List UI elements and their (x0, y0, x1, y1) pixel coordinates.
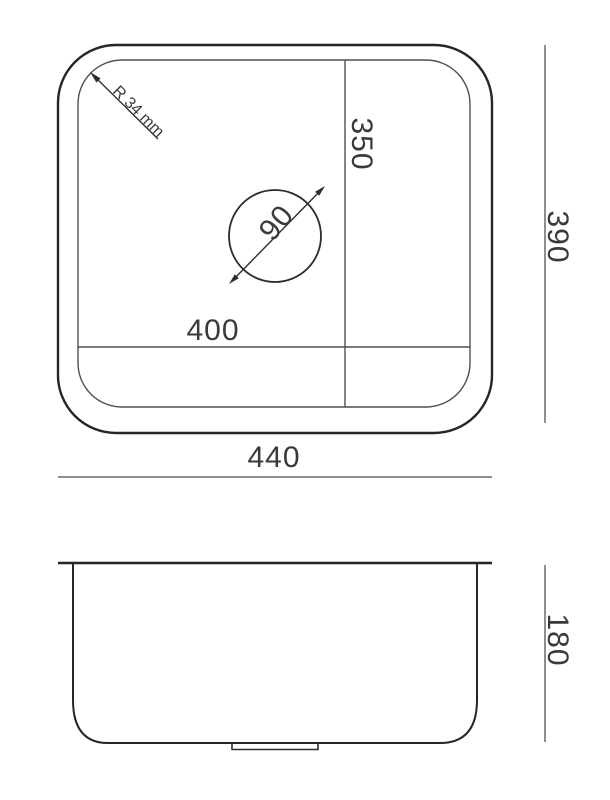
corner-radius-label: R 34 mm (109, 83, 167, 141)
side-view: 180 (58, 563, 574, 750)
side-view-body-outline (73, 563, 477, 743)
depth-label: 180 (541, 613, 574, 666)
overall-width-label: 390 (541, 210, 574, 263)
overall-length-label: 440 (247, 441, 300, 474)
technical-drawing-page: R 34 mm 350 90 400 440 390 180 (0, 0, 610, 800)
drain-diameter-label: 90 (253, 199, 301, 247)
bowl-width-label: 350 (345, 117, 378, 170)
sink-dimension-drawing: R 34 mm 350 90 400 440 390 180 (0, 0, 610, 800)
top-view: R 34 mm 350 90 400 (58, 45, 492, 433)
bowl-length-label: 400 (186, 314, 239, 347)
